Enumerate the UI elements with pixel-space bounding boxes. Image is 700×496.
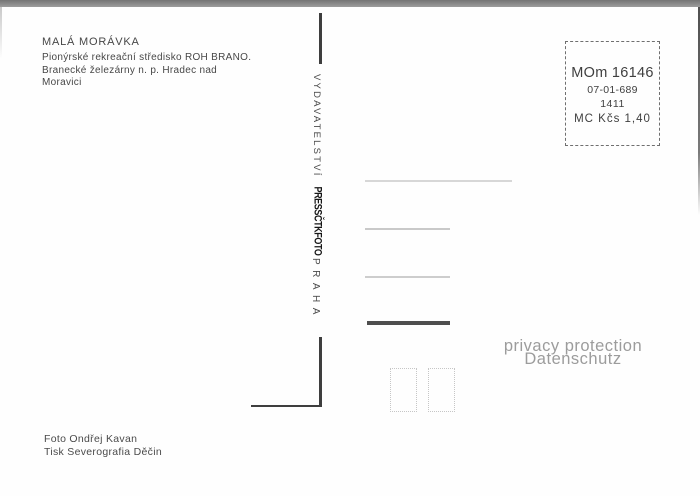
sender-line: Pionýrské rekreační středisko ROH BRANO. (42, 52, 251, 65)
stamp-price-box: MOm 16146 07-01-689 1411 MC Kčs 1,40 (565, 41, 660, 146)
publisher-city-vertical: PRAHA (310, 258, 321, 320)
address-line-4 (367, 321, 450, 325)
divider-top-segment (319, 13, 322, 64)
dotted-placeholder-right (428, 368, 455, 412)
address-line-1 (365, 180, 512, 182)
stamp-year: 1411 (566, 98, 659, 110)
scan-edge-left (0, 7, 2, 59)
address-line-3 (365, 276, 450, 278)
credits-block: Foto Ondřej Kavan Tisk Severografia Děči… (44, 433, 162, 459)
sender-line: Moravici (42, 77, 251, 90)
postcard-scan: MALÁ MORÁVKA Pionýrské rekreační středis… (0, 0, 700, 496)
divider-corner-line (251, 405, 322, 408)
credit-photo: Foto Ondřej Kavan (44, 433, 162, 446)
stamp-price: MC Kčs 1,40 (566, 113, 659, 125)
divider-bottom-segment (319, 337, 322, 407)
scan-edge-top (0, 0, 700, 7)
stamp-code: MOm 16146 (566, 65, 659, 81)
address-line-2 (365, 228, 450, 230)
stamp-number: 07-01-689 (566, 84, 659, 96)
sender-title: MALÁ MORÁVKA (42, 36, 251, 48)
privacy-watermark: privacy protection Datenschutz (480, 340, 666, 366)
sender-block: MALÁ MORÁVKA Pionýrské rekreační středis… (42, 36, 251, 90)
sender-line: Branecké železárny n. p. Hradec nad (42, 65, 251, 78)
dotted-placeholder-left (390, 368, 417, 412)
publisher-name-vertical: VYDAVATELSTVÍ (311, 74, 322, 178)
credit-print: Tisk Severografia Děčin (44, 446, 162, 459)
pressfoto-ctk-logo: PRESSČTKFOTO (308, 191, 328, 251)
pressfoto-ctk-logo-text: PRESSČTKFOTO (312, 186, 325, 255)
